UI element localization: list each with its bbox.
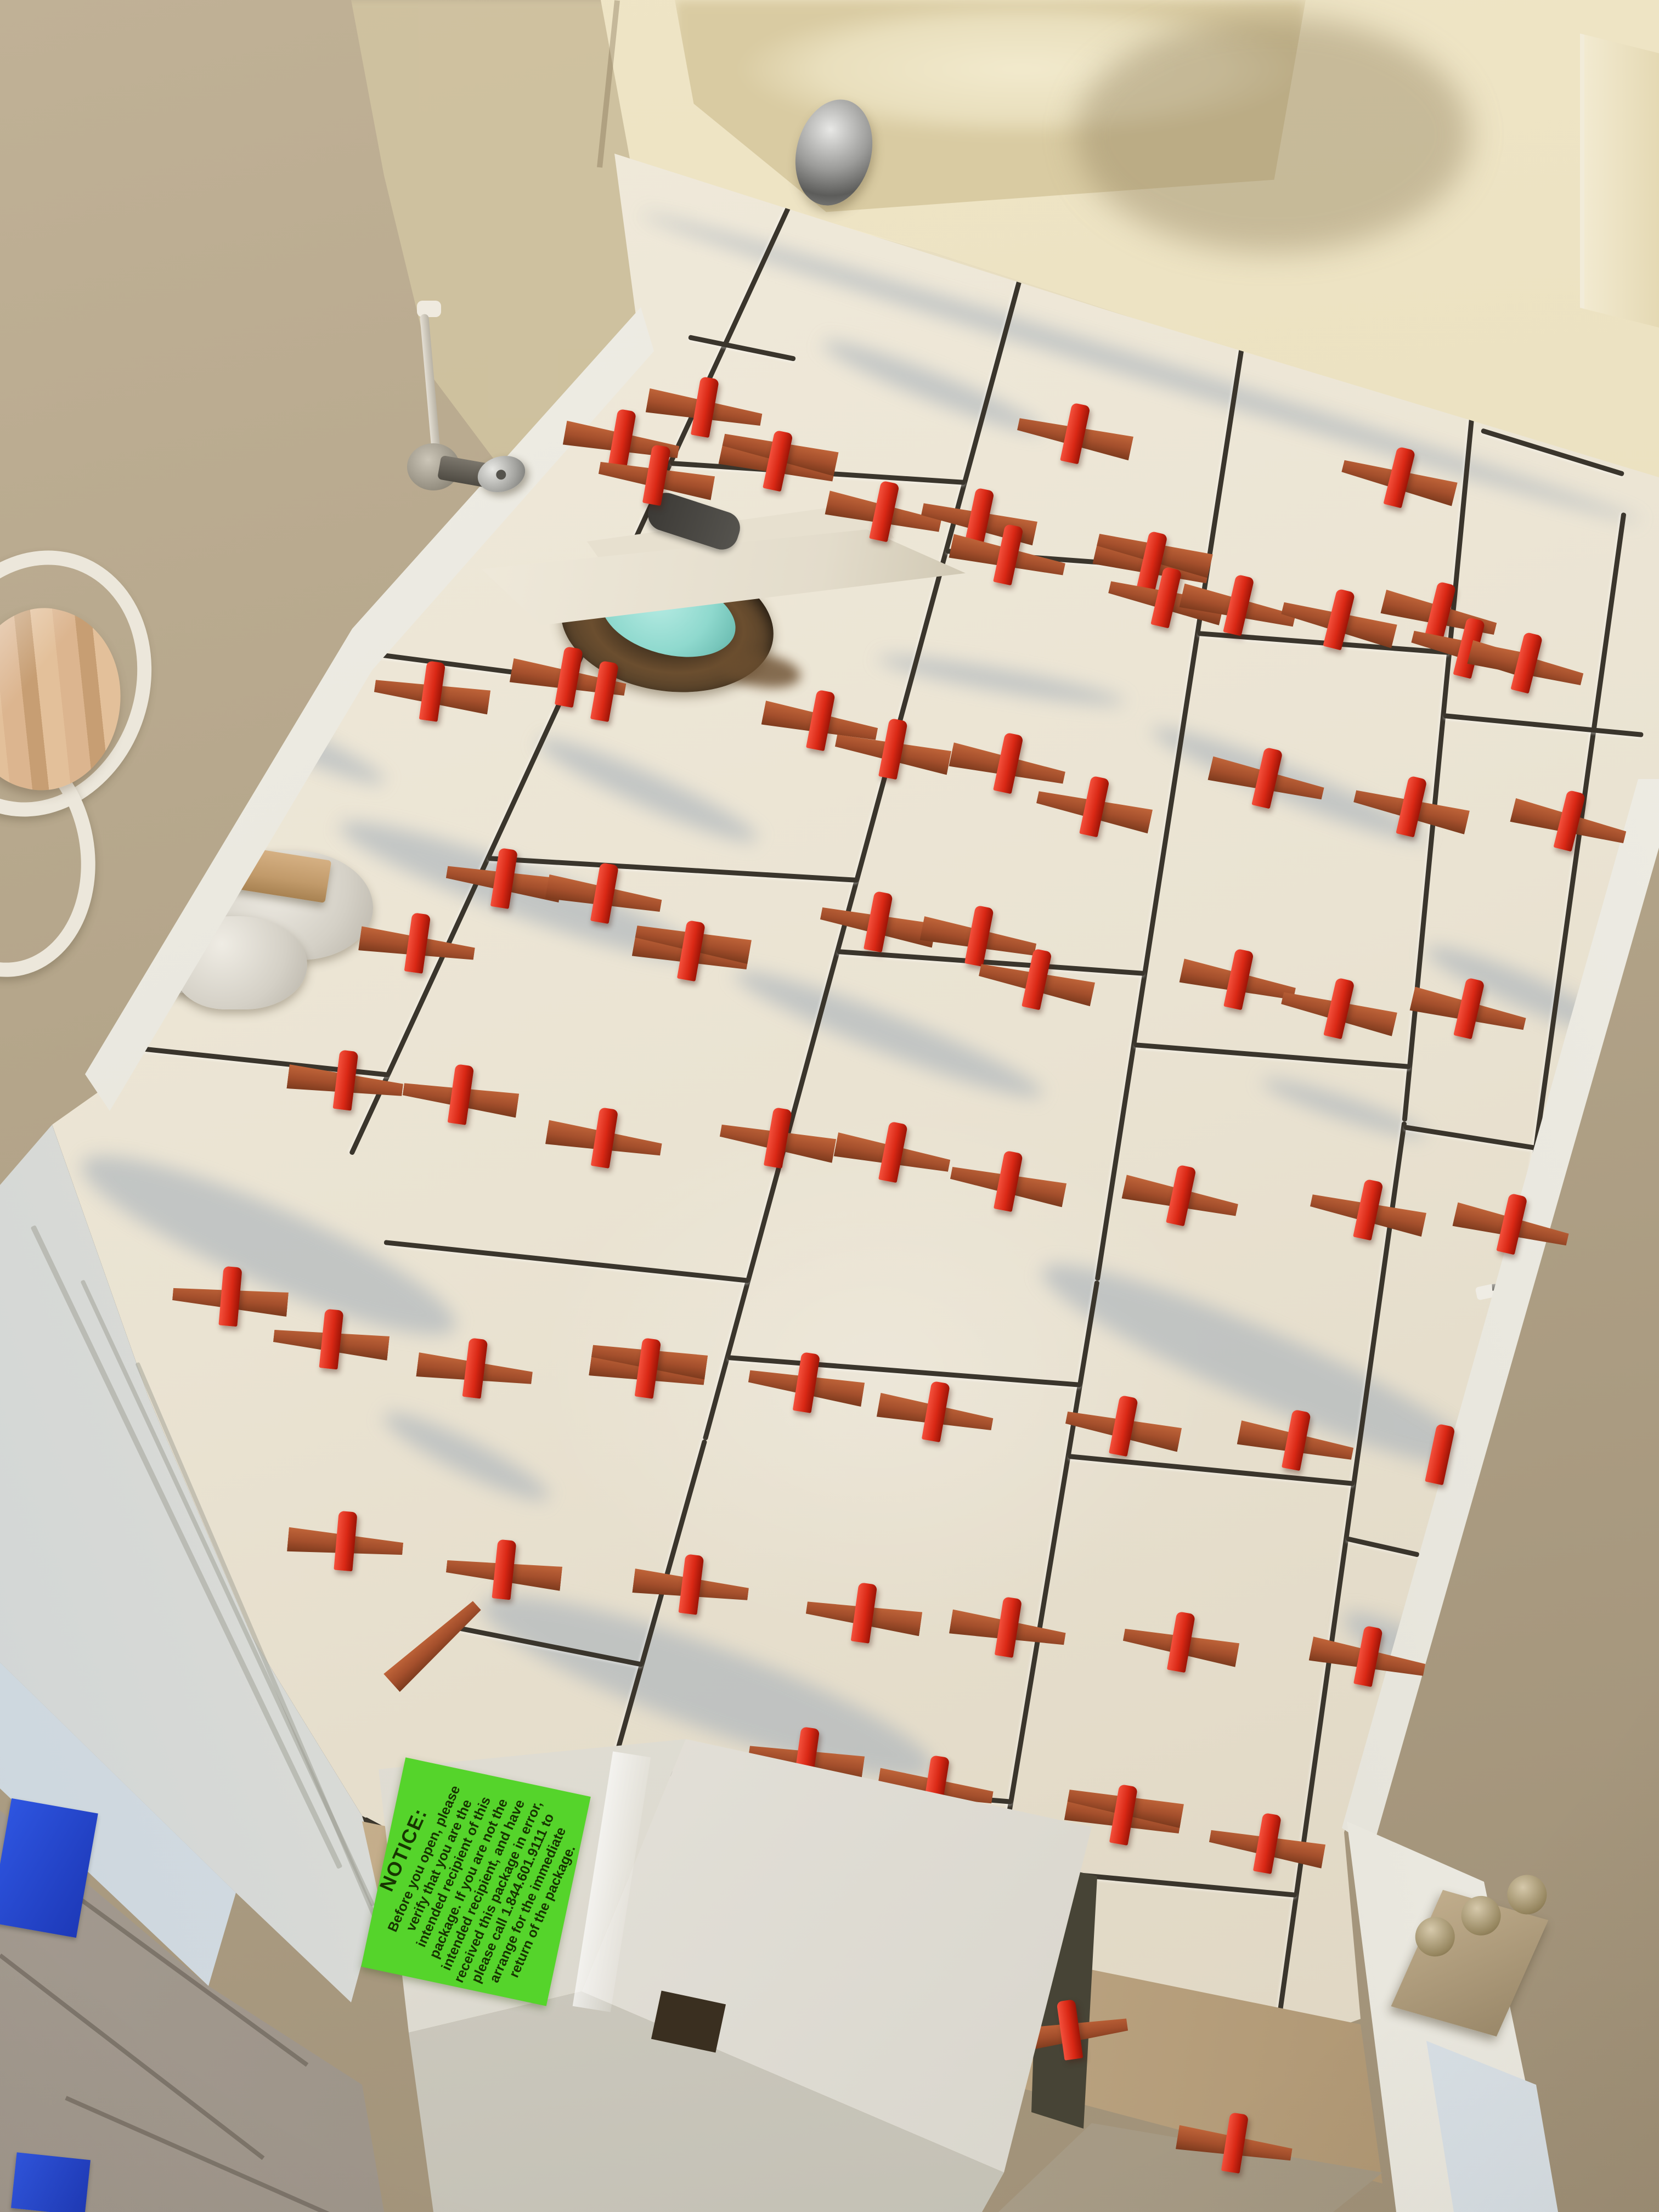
pipe-anchor <box>417 301 441 317</box>
water-supply-valve <box>395 285 571 516</box>
cardboard-box: NOTICE: Before you open, please verify t… <box>0 0 1659 2212</box>
valve-handle <box>473 450 529 498</box>
box-flap <box>0 0 1659 2212</box>
bathroom-tiling-photo: NOTICE: Before you open, please verify t… <box>0 0 1659 2212</box>
